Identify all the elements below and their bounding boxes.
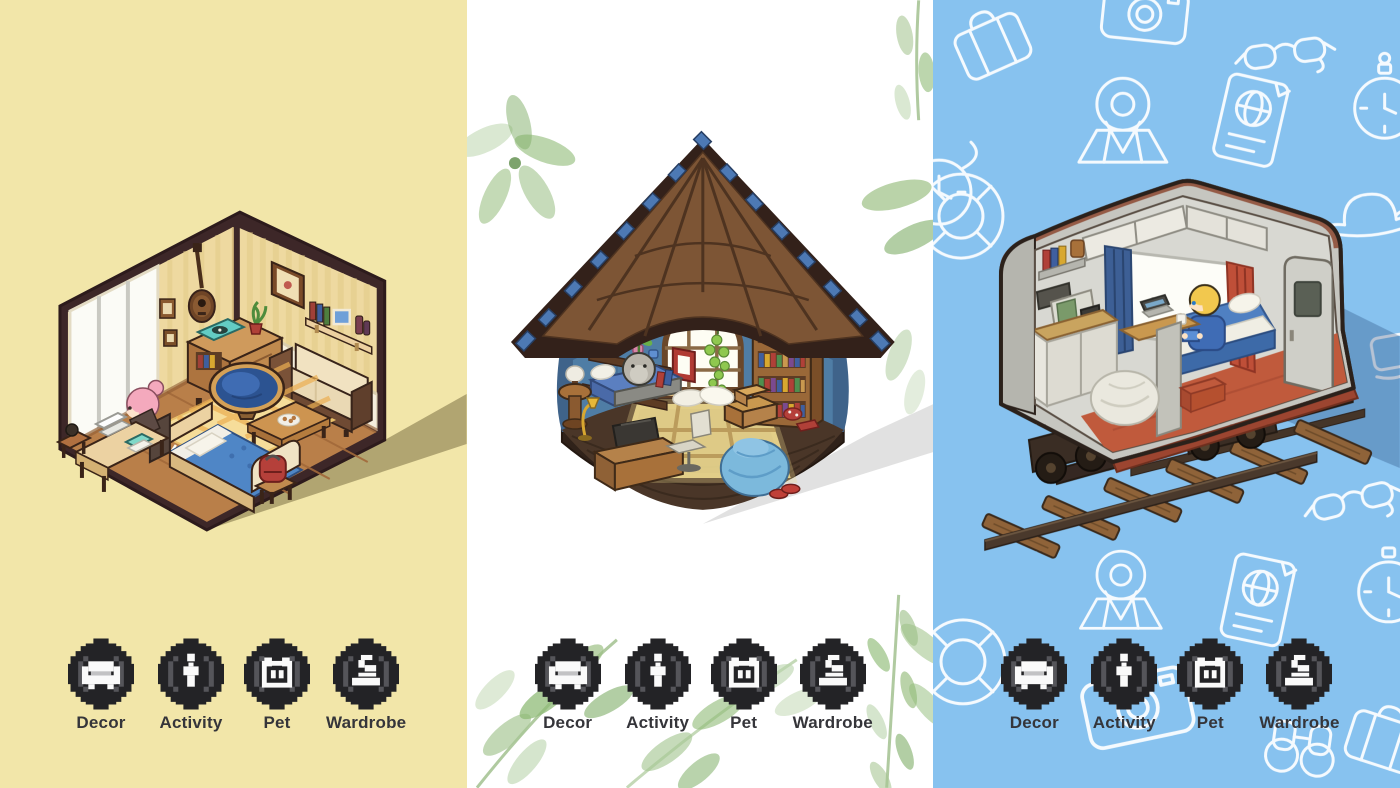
suitcase-doodle	[1343, 697, 1400, 775]
partition-wall	[1157, 322, 1181, 436]
sofa-icon	[535, 638, 601, 710]
passport-doodle	[1212, 73, 1290, 168]
activity-label: Activity	[618, 713, 698, 733]
pocket-watch-doodle	[1359, 548, 1400, 622]
activity-label: Activity	[1084, 713, 1164, 733]
sofa-icon	[68, 638, 134, 710]
pocket-watch-doodle	[1355, 53, 1400, 138]
wardrobe-button[interactable]: Wardrobe	[326, 638, 406, 733]
panel-train-car: Decor Activity Pet Wardrobe	[933, 0, 1400, 788]
game-screen: Decor Activity Pet Wardrobe	[0, 0, 1400, 788]
mannequin-icon	[800, 638, 866, 710]
pet-button[interactable]: Pet	[237, 638, 317, 733]
decor-label: Decor	[994, 713, 1074, 733]
wardrobe-button[interactable]: Wardrobe	[1259, 638, 1339, 733]
wardrobe-label: Wardrobe	[326, 713, 406, 733]
wardrobe-label: Wardrobe	[1259, 713, 1339, 733]
activity-button[interactable]: Activity	[1084, 638, 1164, 733]
decor-label: Decor	[528, 713, 608, 733]
decor-button[interactable]: Decor	[528, 638, 608, 733]
person-icon	[1091, 638, 1157, 710]
camera-doodle	[1101, 0, 1191, 45]
activity-button[interactable]: Activity	[151, 638, 231, 733]
person-icon	[625, 638, 691, 710]
pet-label: Pet	[1170, 713, 1250, 733]
panel-bedroom: Decor Activity Pet Wardrobe	[0, 0, 467, 788]
pet-label: Pet	[237, 713, 317, 733]
wardrobe-label: Wardrobe	[793, 713, 873, 733]
map-pin-doodle	[1079, 78, 1167, 162]
activity-label: Activity	[151, 713, 231, 733]
map-pin-doodle	[1081, 551, 1162, 628]
activity-button[interactable]: Activity	[618, 638, 698, 733]
wardrobe-button[interactable]: Wardrobe	[793, 638, 873, 733]
passport-doodle	[1220, 553, 1297, 648]
pet-button[interactable]: Pet	[704, 638, 784, 733]
train-door	[1285, 257, 1333, 394]
decor-label: Decor	[61, 713, 141, 733]
suitcase-doodle	[948, 0, 1034, 82]
sunglasses-doodle	[1302, 478, 1400, 535]
sofa-icon	[1001, 638, 1067, 710]
pet-label: Pet	[704, 713, 784, 733]
mannequin-icon	[1266, 638, 1332, 710]
decor-button[interactable]: Decor	[61, 638, 141, 733]
mannequin-icon	[333, 638, 399, 710]
pet-face-icon	[711, 638, 777, 710]
person-icon	[158, 638, 224, 710]
pet-face-icon	[1177, 638, 1243, 710]
decor-button[interactable]: Decor	[994, 638, 1074, 733]
roof	[511, 132, 895, 358]
pet-button[interactable]: Pet	[1170, 638, 1250, 733]
panel-forest-hut: Decor Activity Pet Wardrobe	[467, 0, 934, 788]
pet-face-icon	[244, 638, 310, 710]
life-ring-doodle	[933, 174, 1003, 258]
white-bean-bag	[1091, 371, 1159, 425]
